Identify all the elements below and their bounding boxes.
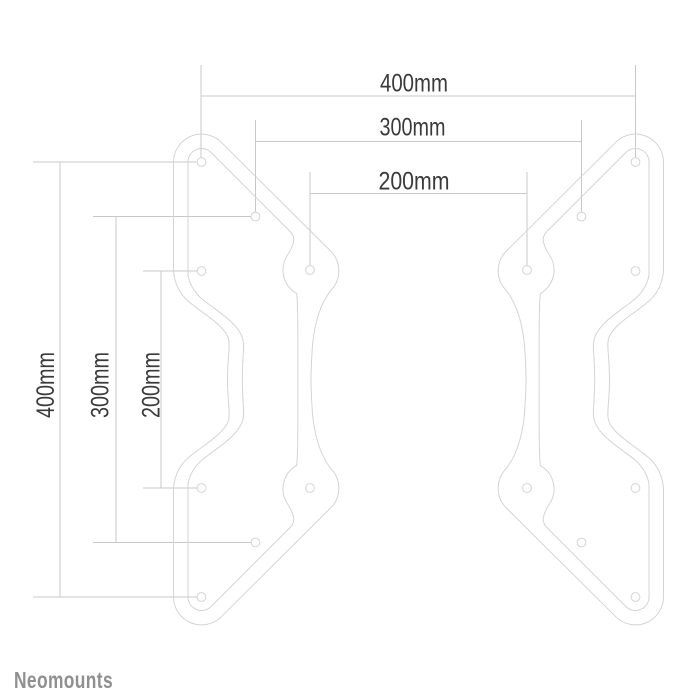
svg-text:Neomounts: Neomounts	[14, 667, 113, 693]
svg-text:400mm: 400mm	[32, 352, 60, 418]
svg-text:300mm: 300mm	[380, 114, 446, 142]
svg-text:200mm: 200mm	[379, 168, 450, 196]
svg-text:200mm: 200mm	[138, 352, 166, 418]
svg-text:400mm: 400mm	[380, 70, 448, 98]
svg-text:300mm: 300mm	[87, 352, 115, 418]
